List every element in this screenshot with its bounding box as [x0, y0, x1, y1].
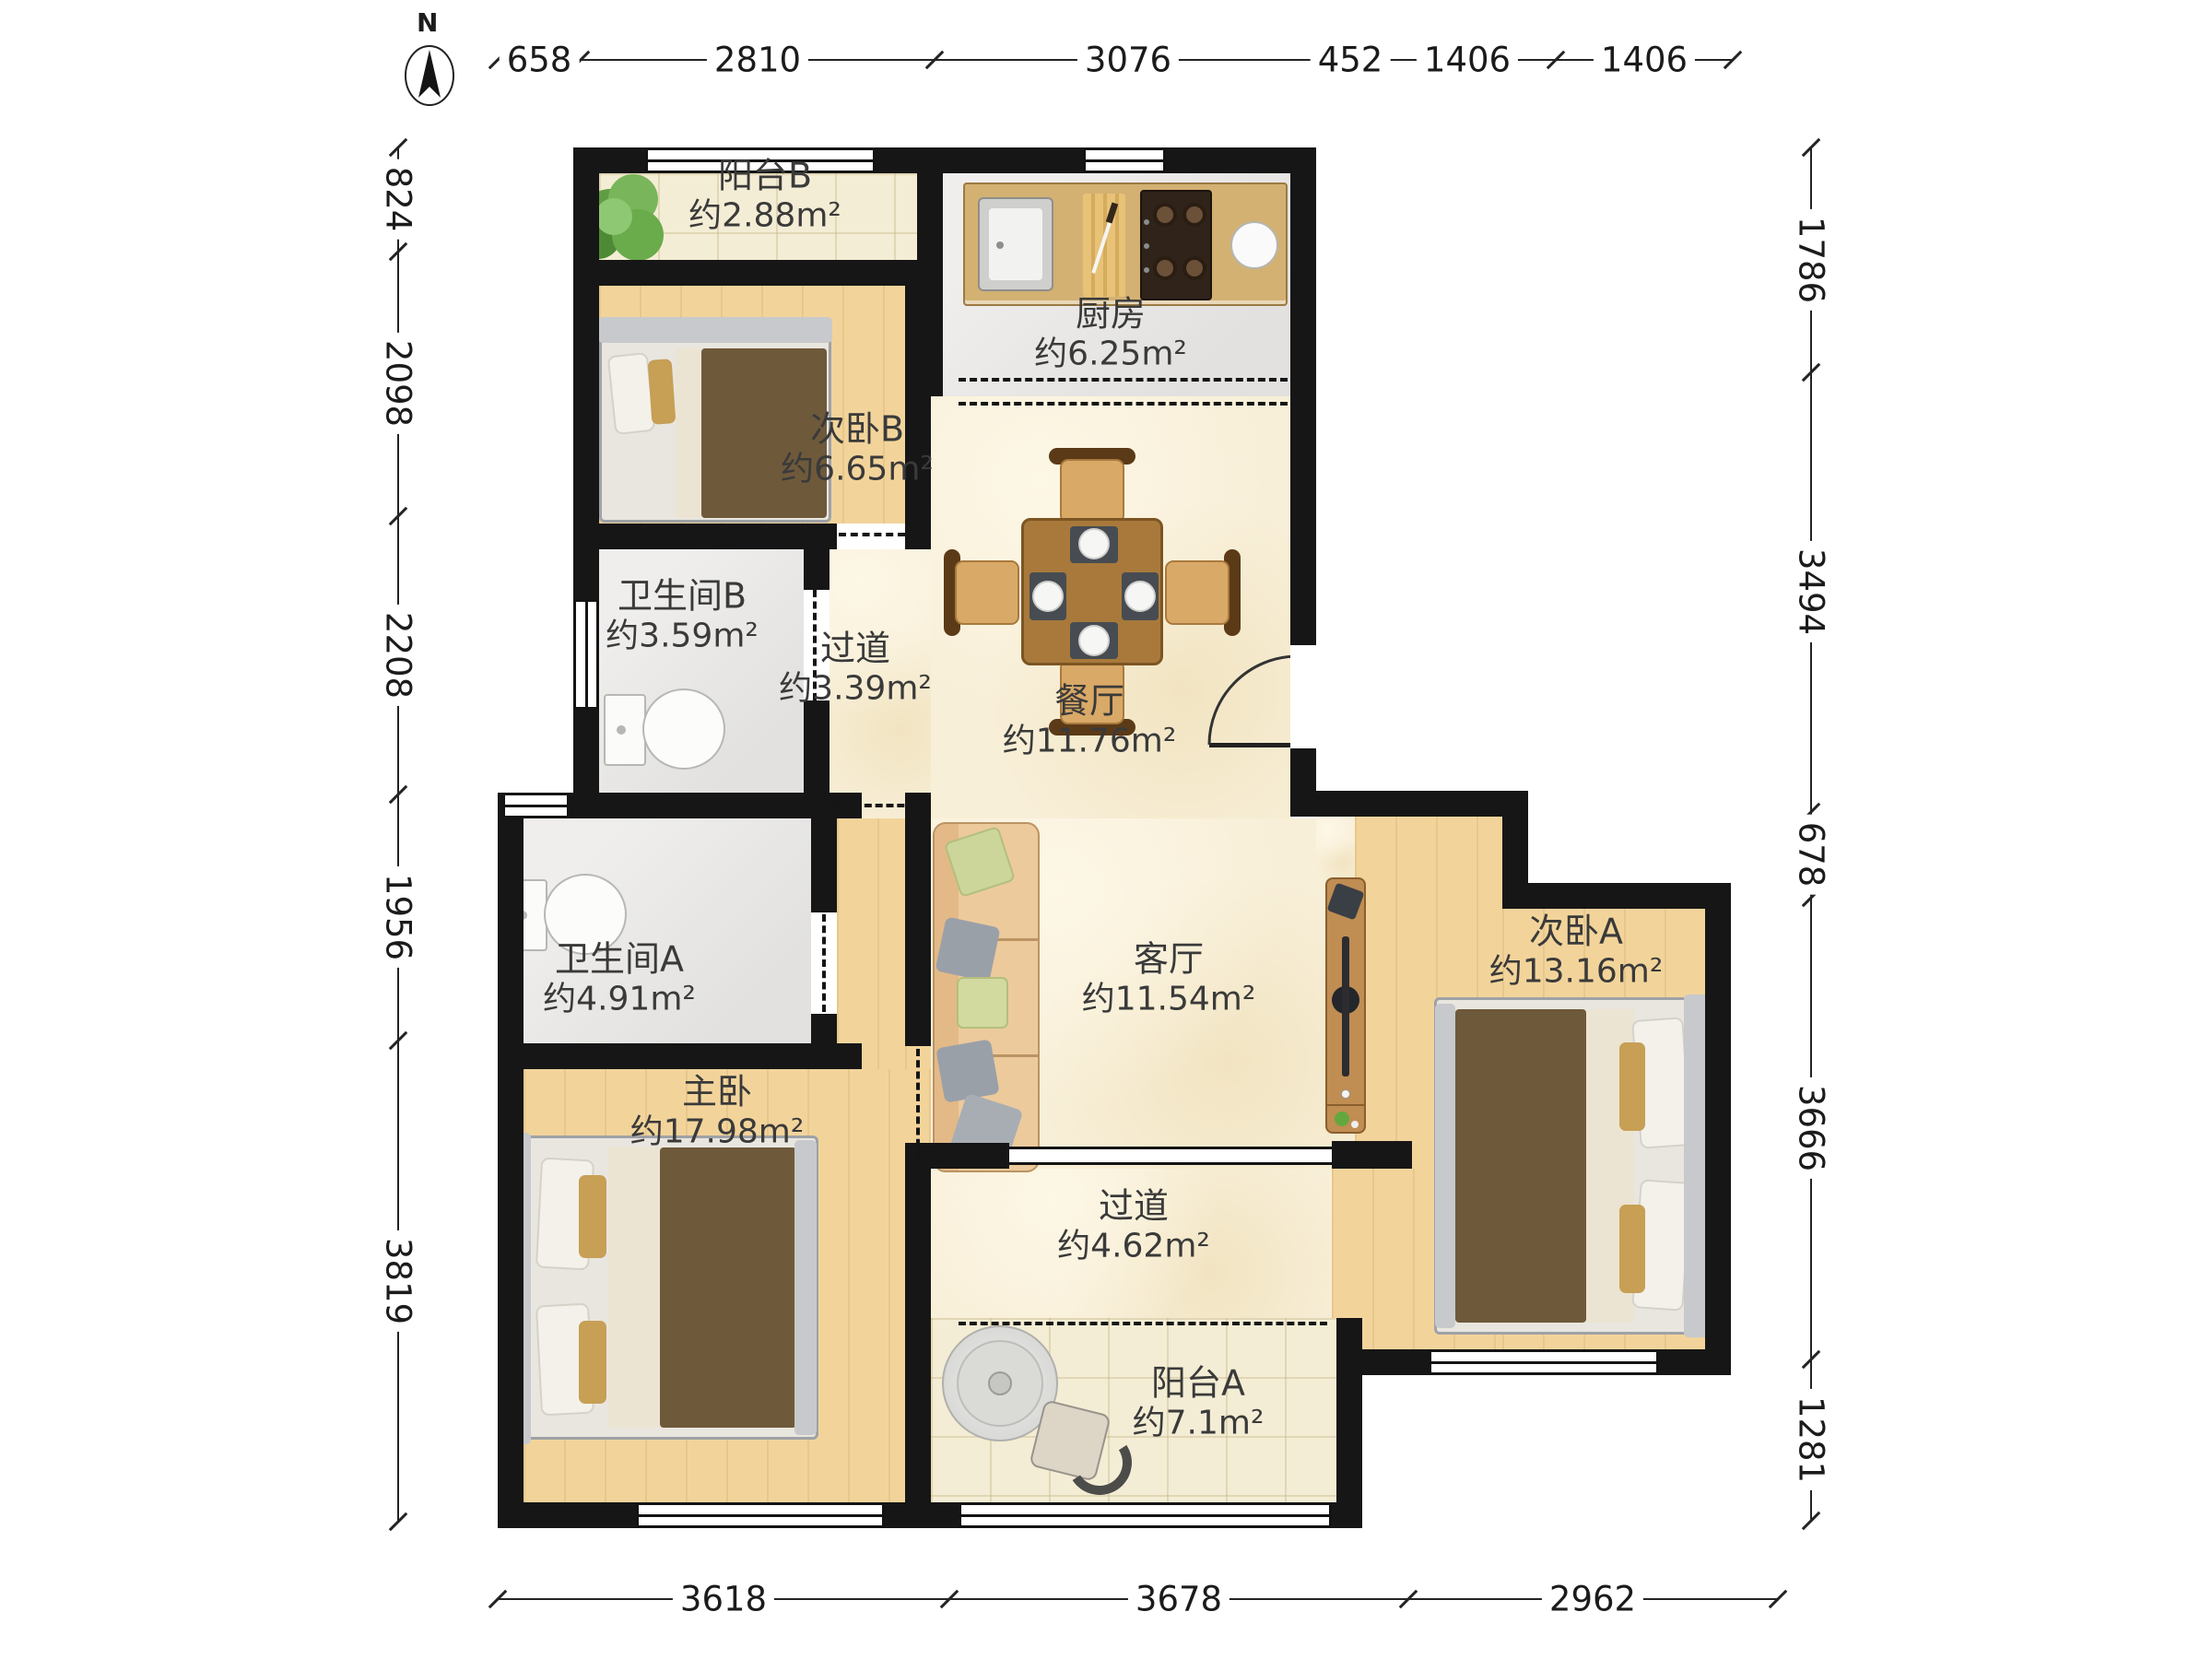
bed-footboard — [794, 1140, 817, 1435]
floor-master-entry — [837, 818, 905, 1069]
wall — [905, 1157, 931, 1502]
window — [502, 793, 570, 818]
dim-value: 2962 — [1542, 1580, 1643, 1619]
wall — [498, 1043, 862, 1069]
dash-opening — [839, 533, 905, 536]
sink-drain — [996, 241, 1004, 249]
dim-value: 1786 — [1792, 209, 1831, 311]
dash-opening — [959, 1322, 1327, 1325]
room-name: 过道 — [1057, 1185, 1210, 1227]
dim-value: 1281 — [1792, 1389, 1831, 1490]
room-area: 约4.91m² — [543, 980, 696, 1018]
room-label-kitchen: 厨房 约6.25m² — [1034, 293, 1187, 373]
toilet-button — [617, 725, 626, 735]
room-label-balcony-a: 阳台A 约7.1m² — [1133, 1362, 1265, 1442]
dim-value: 2208 — [379, 605, 418, 706]
room-label-bathroom-a: 卫生间A 约4.91m² — [543, 938, 696, 1018]
room-area: 约7.1m² — [1133, 1404, 1265, 1442]
dash-opening — [822, 914, 826, 1012]
room-label-dining: 餐厅 约11.76m² — [1003, 680, 1177, 760]
room-label-master: 主卧 约17.98m² — [630, 1071, 805, 1151]
bed-blanket — [660, 1147, 796, 1428]
wall — [1290, 791, 1528, 817]
compass-icon — [402, 37, 457, 109]
room-label-bathroom-b: 卫生间B 约3.59m² — [606, 575, 759, 655]
wall — [905, 1143, 1009, 1169]
chair-icon — [1060, 459, 1124, 524]
dim-value: 658 — [500, 41, 580, 80]
room-area: 约3.39m² — [779, 669, 932, 708]
burner — [1153, 203, 1177, 227]
toilet-icon — [604, 687, 728, 775]
wall — [905, 793, 931, 1046]
bed-pillow — [1619, 1205, 1645, 1293]
wall — [905, 260, 931, 549]
wall — [1705, 883, 1731, 1375]
burner — [1182, 256, 1206, 280]
bed-headboard — [598, 317, 832, 343]
tv-icon — [1342, 936, 1349, 1077]
dim-value: 3678 — [1128, 1580, 1230, 1619]
room-label-hallway-b: 过道 约3.39m² — [779, 628, 932, 708]
dim-value: 1956 — [379, 866, 418, 968]
bed-blanket — [1455, 1009, 1586, 1323]
compass-north-label: N — [417, 7, 438, 38]
bed-pillow — [648, 359, 677, 425]
door-opening — [1290, 645, 1316, 748]
room-label-balcony-b: 阳台B 约2.88m² — [688, 155, 841, 235]
room-area: 约13.16m² — [1489, 952, 1664, 991]
room-area: 约4.62m² — [1057, 1227, 1210, 1265]
window — [1429, 1349, 1659, 1375]
room-name: 阳台B — [688, 155, 841, 196]
room-name: 餐厅 — [1003, 680, 1177, 722]
room-area: 约11.76m² — [1003, 722, 1177, 760]
stove-knob — [1144, 267, 1149, 273]
window — [959, 1502, 1332, 1528]
wall — [1332, 1141, 1412, 1169]
dim-value: 3076 — [1077, 41, 1179, 80]
double-bed-icon — [1434, 997, 1711, 1335]
wall — [1502, 883, 1731, 909]
speaker-icon — [1326, 882, 1364, 920]
entry-door-icon — [1207, 653, 1300, 748]
sink-icon — [978, 197, 1053, 291]
dash-opening — [959, 402, 1288, 406]
stove-icon — [1140, 190, 1212, 300]
room-area: 约17.98m² — [630, 1112, 805, 1151]
dash-opening — [788, 804, 926, 807]
window — [573, 599, 599, 710]
bed-pillow — [579, 1175, 606, 1258]
bed-sheet — [676, 348, 701, 518]
room-name: 阳台A — [1133, 1362, 1265, 1404]
room-name: 卫生间B — [606, 575, 759, 617]
sofa-pillow-gray — [935, 916, 1000, 982]
bed-pillow — [579, 1321, 606, 1404]
stove-knob — [1144, 219, 1149, 225]
room-area: 约6.65m² — [781, 450, 934, 488]
toilet-bowl — [642, 688, 725, 770]
tv-cabinet-icon — [1325, 877, 1366, 1134]
dim-value: 1406 — [1594, 41, 1695, 80]
room-name: 主卧 — [630, 1071, 805, 1112]
dim-value: 1406 — [1417, 41, 1518, 80]
room-area: 约3.59m² — [606, 617, 759, 655]
dim-value: 678 — [1792, 815, 1831, 895]
room-area: 约2.88m² — [688, 196, 841, 235]
pebble-icon — [1351, 1121, 1359, 1128]
dim-value: 2098 — [379, 333, 418, 434]
dim-value: 3666 — [1792, 1077, 1831, 1179]
room-name: 过道 — [779, 628, 932, 669]
plate-icon — [1032, 581, 1064, 612]
bed-sheet — [608, 1147, 660, 1428]
room-name: 厨房 — [1034, 293, 1187, 335]
cabinet-divider — [1327, 1104, 1364, 1106]
dim-value: 3618 — [673, 1580, 774, 1619]
chair-icon — [955, 560, 1019, 625]
floor-plan: 阳台B 约2.88m² 厨房 约6.25m² 次卧B 约6.65m² 卫生间B … — [0, 0, 2212, 1659]
wall — [573, 524, 839, 549]
washer-cap — [988, 1371, 1012, 1395]
dash-opening — [916, 1049, 920, 1158]
knife-handle — [1106, 202, 1118, 223]
window — [636, 1502, 885, 1528]
room-label-hallway-a: 过道 约4.62m² — [1057, 1185, 1210, 1265]
plate-icon — [1078, 625, 1110, 656]
sofa-icon — [933, 822, 1040, 1172]
dim-value: 452 — [1311, 41, 1391, 80]
wall — [573, 260, 931, 286]
sofa-pillow-gray — [935, 1039, 1000, 1103]
dim-value: 3494 — [1792, 541, 1831, 642]
room-label-bedroom-a: 次卧A 约13.16m² — [1489, 911, 1664, 991]
bed-footboard — [1435, 1004, 1455, 1328]
sofa-pillow-green — [957, 977, 1008, 1029]
room-name: 次卧A — [1489, 911, 1664, 952]
wall — [811, 818, 837, 912]
room-area: 约11.54m² — [1082, 980, 1256, 1018]
door-opening — [837, 524, 905, 549]
small-plant-icon — [1335, 1112, 1349, 1126]
room-label-living: 客厅 约11.54m² — [1082, 938, 1256, 1018]
bed-pillow — [1619, 1042, 1645, 1131]
plate-icon — [1124, 581, 1156, 612]
plant-leaf — [595, 198, 632, 235]
room-area: 约6.25m² — [1034, 335, 1187, 373]
room-name: 客厅 — [1082, 938, 1256, 980]
dining-table-icon — [1021, 518, 1163, 665]
dash-opening — [959, 378, 1288, 382]
knob-icon — [1341, 1089, 1350, 1099]
wall — [573, 147, 599, 818]
kitchen-counter — [963, 182, 1288, 306]
chair-icon — [1165, 560, 1230, 625]
room-name: 卫生间A — [543, 938, 696, 980]
dim-value: 3819 — [379, 1230, 418, 1332]
dim-value: 2810 — [707, 41, 808, 80]
open-beam — [1009, 1147, 1332, 1165]
burner — [1182, 203, 1206, 227]
plate-icon — [1078, 528, 1110, 559]
burner — [1153, 256, 1177, 280]
bowl-icon — [1230, 221, 1278, 269]
wall — [498, 793, 524, 1528]
room-name: 次卧B — [781, 408, 934, 450]
stove-knob — [1144, 243, 1149, 249]
room-label-bedroom-b: 次卧B 约6.65m² — [781, 408, 934, 488]
double-bed-icon — [502, 1135, 818, 1440]
window — [1083, 147, 1166, 173]
cutting-board-icon — [1083, 194, 1125, 297]
floor-living-corner — [1316, 817, 1355, 883]
dim-value: 824 — [379, 159, 418, 240]
